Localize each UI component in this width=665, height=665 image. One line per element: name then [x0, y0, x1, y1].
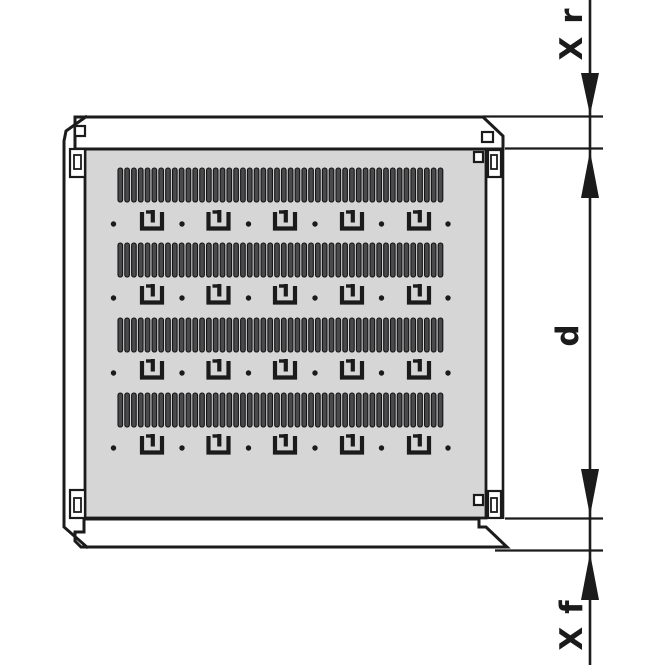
vent-slot [363, 318, 368, 352]
vent-slot [186, 393, 191, 427]
vent-slot [138, 168, 143, 202]
vent-slot [138, 243, 143, 277]
vent-slot [213, 393, 218, 427]
vent-slot [418, 318, 423, 352]
vent-slot [247, 243, 252, 277]
vent-slot [384, 243, 389, 277]
vent-slot [261, 393, 266, 427]
vent-slot [356, 243, 361, 277]
vent-slot [316, 393, 321, 427]
vent-slot [186, 243, 191, 277]
vent-slot [343, 243, 348, 277]
vent-slot [261, 318, 266, 352]
vent-slot [227, 243, 232, 277]
rivet-dot [445, 221, 450, 226]
vent-slot [309, 393, 314, 427]
vent-slot [431, 243, 436, 277]
vent-slot [254, 393, 259, 427]
vent-slot [173, 393, 178, 427]
vent-slot [241, 318, 246, 352]
vent-slot [336, 318, 341, 352]
dimension-label-usable-depth: d [550, 323, 586, 346]
vent-slot [138, 393, 143, 427]
vent-slot [302, 318, 307, 352]
vent-slot [200, 393, 205, 427]
vent-slot [254, 168, 259, 202]
vent-slot [391, 243, 396, 277]
vent-slot [329, 168, 334, 202]
vent-slot [145, 243, 150, 277]
rivet-dot [312, 221, 317, 226]
rivet-dot [111, 370, 116, 375]
vent-slot [207, 393, 212, 427]
vent-slot [309, 318, 314, 352]
vent-slot [391, 393, 396, 427]
vent-slot [418, 168, 423, 202]
corner-clip-bottom-left [70, 490, 85, 518]
vent-slot [179, 168, 184, 202]
vent-slot [179, 243, 184, 277]
vent-slot [275, 168, 280, 202]
vent-slot [132, 393, 137, 427]
technical-drawing: X r d X f [0, 0, 665, 665]
vent-slot [438, 318, 443, 352]
vent-slot [384, 393, 389, 427]
vent-slot [179, 318, 184, 352]
vent-slot [261, 243, 266, 277]
vent-slot [397, 168, 402, 202]
vent-slot [384, 318, 389, 352]
vent-slot [254, 318, 259, 352]
vent-slot [404, 318, 409, 352]
vent-slot [125, 318, 130, 352]
rivet-dot [179, 221, 184, 226]
vent-slot [227, 318, 232, 352]
vent-slot [404, 393, 409, 427]
vent-slot [356, 393, 361, 427]
vent-slot [132, 168, 137, 202]
rivet-dot [312, 445, 317, 450]
rivet-dot [246, 221, 251, 226]
vent-slot [411, 318, 416, 352]
vent-slot [425, 318, 430, 352]
rivet-dot [445, 370, 450, 375]
vent-slot [193, 318, 198, 352]
vent-slot [282, 168, 287, 202]
vent-slot [404, 168, 409, 202]
vent-slot [247, 318, 252, 352]
vent-slot [316, 243, 321, 277]
vent-slot [118, 318, 123, 352]
vent-slot [377, 243, 382, 277]
rivet-dot [246, 370, 251, 375]
vent-slot [166, 318, 171, 352]
vent-slot [193, 168, 198, 202]
rivet-dot [246, 295, 251, 300]
rivet-dot [312, 295, 317, 300]
vent-slot [302, 393, 307, 427]
vent-slot [268, 318, 273, 352]
vent-slot [438, 243, 443, 277]
vent-slot [295, 318, 300, 352]
vent-slot [241, 168, 246, 202]
corner-clip-top-left [70, 149, 85, 177]
vent-slot [377, 393, 382, 427]
vent-slot [343, 168, 348, 202]
vent-slot [213, 243, 218, 277]
vent-slot [200, 318, 205, 352]
vent-slot [173, 318, 178, 352]
top-rail [75, 117, 503, 149]
vent-slot [363, 168, 368, 202]
vent-slot [166, 243, 171, 277]
vent-slot [288, 393, 293, 427]
vent-slot [268, 243, 273, 277]
vent-slot [316, 168, 321, 202]
vent-slot [159, 318, 164, 352]
vent-slot [118, 393, 123, 427]
vent-slot [207, 243, 212, 277]
vent-slot [186, 168, 191, 202]
vent-slot [425, 393, 430, 427]
vent-slot [152, 243, 157, 277]
vent-slot [425, 243, 430, 277]
vent-slot [213, 318, 218, 352]
vent-slot [322, 168, 327, 202]
vent-slot [411, 243, 416, 277]
vent-slot [438, 168, 443, 202]
vent-slot [234, 393, 239, 427]
vent-slot [173, 243, 178, 277]
vent-slot [411, 393, 416, 427]
vent-slot [288, 318, 293, 352]
vent-slot [370, 393, 375, 427]
rivet-dot [379, 445, 384, 450]
vent-slot [309, 168, 314, 202]
vent-slot [431, 393, 436, 427]
vent-slot [431, 168, 436, 202]
arrow-depth-down [581, 469, 599, 516]
vent-slot [220, 168, 225, 202]
dimension-label-rear-clearance: X r [554, 8, 590, 61]
vent-slot [370, 318, 375, 352]
vent-slot [377, 168, 382, 202]
rivet-dot [312, 370, 317, 375]
vent-slot [152, 168, 157, 202]
vent-slot [247, 168, 252, 202]
rivet-dot [111, 295, 116, 300]
vent-slot [397, 243, 402, 277]
arrow-front-up [581, 553, 599, 600]
rivet-dot [379, 370, 384, 375]
rivet-dot [445, 445, 450, 450]
vent-slot [125, 243, 130, 277]
shelf-assembly [64, 116, 507, 548]
vent-slot [370, 168, 375, 202]
vent-slot [288, 243, 293, 277]
arrow-depth-up [581, 151, 599, 198]
vent-slot [295, 168, 300, 202]
vent-slot [247, 393, 252, 427]
vent-slot [411, 168, 416, 202]
vent-slot [166, 393, 171, 427]
vent-slot [329, 243, 334, 277]
vent-slot [145, 318, 150, 352]
vent-slot [207, 318, 212, 352]
vent-slot [418, 243, 423, 277]
vent-slot [132, 318, 137, 352]
vent-slot [213, 168, 218, 202]
vent-slot [295, 243, 300, 277]
vent-slot [309, 243, 314, 277]
vent-slot [200, 243, 205, 277]
rivet-dot [111, 221, 116, 226]
vent-slot [200, 168, 205, 202]
vent-slot [138, 318, 143, 352]
vent-slot [145, 168, 150, 202]
rivet-dot [179, 370, 184, 375]
rivet-dot [379, 295, 384, 300]
vent-slot [302, 243, 307, 277]
vent-slot [336, 393, 341, 427]
vent-slot [295, 393, 300, 427]
vent-slot [397, 393, 402, 427]
vent-slot [370, 243, 375, 277]
vent-slot [275, 243, 280, 277]
vent-slot [282, 318, 287, 352]
rivet-dot [379, 221, 384, 226]
vent-slot [234, 243, 239, 277]
rivet-dot [179, 295, 184, 300]
vent-slot [329, 318, 334, 352]
vent-slot [391, 168, 396, 202]
vent-slot [186, 318, 191, 352]
vent-slot [302, 168, 307, 202]
vent-slot [343, 318, 348, 352]
vent-slot [397, 318, 402, 352]
vent-slot [329, 393, 334, 427]
vent-slot [356, 318, 361, 352]
vent-slot [438, 393, 443, 427]
vent-slot [322, 243, 327, 277]
top-rail-right-notch [482, 132, 493, 142]
vent-slot [322, 318, 327, 352]
rivet-dot [445, 295, 450, 300]
rivet-dot [111, 445, 116, 450]
vent-slot [118, 168, 123, 202]
vent-slot [316, 318, 321, 352]
vent-slot [166, 168, 171, 202]
vent-slot [343, 393, 348, 427]
vent-slot [132, 243, 137, 277]
vent-slot [350, 318, 355, 352]
vent-slot [227, 393, 232, 427]
vent-slot [350, 393, 355, 427]
vent-slot [404, 243, 409, 277]
vent-slot [125, 168, 130, 202]
vent-slot [159, 168, 164, 202]
vent-slot [282, 243, 287, 277]
vent-slot [275, 318, 280, 352]
vent-slot [159, 243, 164, 277]
vent-slot [268, 393, 273, 427]
vent-slot [207, 168, 212, 202]
vent-slot [152, 318, 157, 352]
vent-slot [241, 393, 246, 427]
vent-slot [179, 393, 184, 427]
vent-slot [234, 168, 239, 202]
vent-slot [350, 243, 355, 277]
arrow-rear-down [581, 73, 599, 115]
vent-slot [193, 243, 198, 277]
vent-slot [377, 318, 382, 352]
vent-slot [350, 168, 355, 202]
vent-slot [418, 393, 423, 427]
vent-slot [145, 393, 150, 427]
vent-slot [241, 243, 246, 277]
vent-slot [275, 393, 280, 427]
vent-slot [268, 168, 273, 202]
drawing-canvas: X r d X f [0, 0, 665, 665]
vent-slot [234, 318, 239, 352]
dimension-annotations: X r d X f [483, 0, 603, 665]
vent-slot [159, 393, 164, 427]
vent-slot [261, 168, 266, 202]
rivet-dot [246, 445, 251, 450]
vent-slot [254, 243, 259, 277]
vent-slot [220, 243, 225, 277]
vent-slot [431, 318, 436, 352]
top-rail-left-notch [75, 126, 85, 136]
vent-slot [125, 393, 130, 427]
dimension-label-front-clearance: X f [554, 599, 590, 650]
vent-slot [118, 243, 123, 277]
vent-slot [363, 393, 368, 427]
vent-slot [193, 393, 198, 427]
vent-slot [173, 168, 178, 202]
vent-slot [220, 318, 225, 352]
vent-slot [384, 168, 389, 202]
vent-slot [391, 318, 396, 352]
vent-slot [282, 393, 287, 427]
vent-slot [288, 168, 293, 202]
vent-slot [336, 168, 341, 202]
vent-slot [227, 168, 232, 202]
vent-slot [322, 393, 327, 427]
vent-slot [152, 393, 157, 427]
vent-slot [220, 393, 225, 427]
bottom-rail [75, 519, 507, 547]
vent-slot [336, 243, 341, 277]
vent-slot [356, 168, 361, 202]
rivet-dot [179, 445, 184, 450]
vent-slot [425, 168, 430, 202]
vent-slot [363, 243, 368, 277]
